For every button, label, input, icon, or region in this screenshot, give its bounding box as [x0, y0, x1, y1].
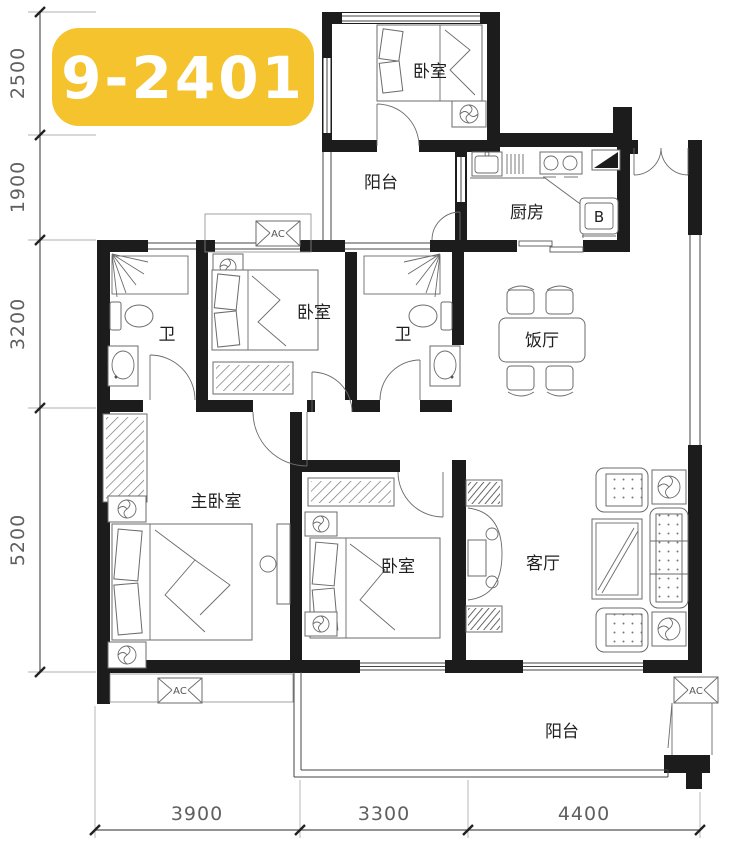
room-label-dining: 饭厅: [525, 331, 559, 351]
dresser: [260, 524, 290, 604]
sink-icon: [430, 346, 460, 386]
room-dining: 饭厅: [499, 286, 585, 396]
room-label-living: 客厅: [526, 554, 560, 574]
dim-bottom-3900: 3900: [171, 803, 223, 825]
dim-left-5200: 5200: [7, 514, 29, 566]
fridge: B: [580, 198, 618, 236]
armchair: [596, 608, 648, 652]
dim-left-2500: 2500: [7, 47, 29, 99]
fridge-label: B: [594, 208, 604, 226]
duct-shaft: [592, 150, 620, 170]
unit-badge: 9-2401: [52, 28, 314, 126]
coffee-table: [592, 519, 642, 599]
room-bedroom-top: 卧室: [377, 25, 486, 127]
room-label-balcony-top: 阳台: [364, 173, 398, 193]
shower-lines: [364, 254, 440, 297]
wardrobe: [103, 414, 147, 502]
floor-plan-canvas: 卧室 B 厨房 阳台: [0, 0, 735, 844]
ac-label-top: AC: [271, 229, 285, 240]
dining-chair: [507, 366, 534, 396]
room-balcony-top: 阳台: [364, 173, 398, 193]
wardrobe: [308, 478, 394, 506]
shower-lines: [112, 254, 188, 297]
room-label-balcony-bottom: 阳台: [545, 722, 579, 742]
ceiling-fan-icon: [108, 496, 146, 522]
dimension-bottom: 3900 3300 4400: [90, 706, 705, 838]
room-label-master-bedroom: 主卧室: [191, 492, 242, 512]
ac-unit-bottom-left: AC: [158, 678, 202, 703]
room-label-bedroom-top: 卧室: [413, 62, 447, 82]
sofa: [650, 508, 688, 608]
tv-wall: [466, 480, 502, 632]
room-label-kitchen: 厨房: [510, 203, 544, 223]
ceiling-fan-icon: [652, 470, 686, 504]
room-label-bedroom-lower: 卧室: [381, 557, 415, 577]
dim-bottom-3300: 3300: [358, 803, 410, 825]
room-kitchen: B 厨房: [470, 150, 620, 238]
ac-label-bottom-left: AC: [173, 686, 187, 697]
ceiling-fan-icon: [108, 642, 146, 668]
ac-label-bottom-right: AC: [689, 686, 703, 697]
kitchen-vent-grill: [507, 154, 523, 174]
room-master-bedroom: 主卧室: [103, 414, 290, 668]
toilet-icon: [110, 302, 153, 330]
room-living: 客厅: [526, 468, 688, 652]
dining-chair: [546, 286, 573, 314]
ceiling-fan-icon: [452, 101, 486, 127]
ceiling-fan-icon: [652, 612, 686, 646]
room-bath-right: 卫: [364, 254, 460, 386]
room-balcony-bottom: 阳台: [545, 722, 579, 742]
armchair: [596, 468, 648, 512]
toilet-icon: [409, 302, 452, 330]
floor-plan-page: 卧室 B 厨房 阳台: [0, 0, 735, 844]
ceiling-fan-icon: [305, 512, 337, 536]
ac-unit-bottom-right: AC: [668, 677, 718, 755]
dim-left-1900: 1900: [7, 161, 29, 213]
room-bedroom-lower: 卧室: [305, 478, 440, 638]
ac-unit-top: AC: [205, 214, 311, 252]
stove-icon: [540, 152, 582, 177]
room-bedroom-mid: 卧室: [212, 254, 331, 394]
sink-icon: [108, 346, 138, 386]
dining-chair: [546, 366, 573, 396]
room-label-bath-left: 卫: [159, 325, 176, 345]
room-label-bedroom-mid: 卧室: [297, 303, 331, 323]
kitchen-sink: [472, 152, 502, 176]
room-bath-left: 卫: [108, 254, 188, 386]
dining-chair: [507, 286, 534, 314]
dim-bottom-4400: 4400: [558, 803, 610, 825]
dim-left-3200: 3200: [7, 298, 29, 350]
unit-badge-label: 9-2401: [61, 44, 305, 112]
ceiling-fan-icon: [305, 612, 337, 636]
wardrobe: [213, 362, 293, 394]
bed: [112, 524, 252, 640]
room-label-bath-right: 卫: [395, 325, 412, 345]
